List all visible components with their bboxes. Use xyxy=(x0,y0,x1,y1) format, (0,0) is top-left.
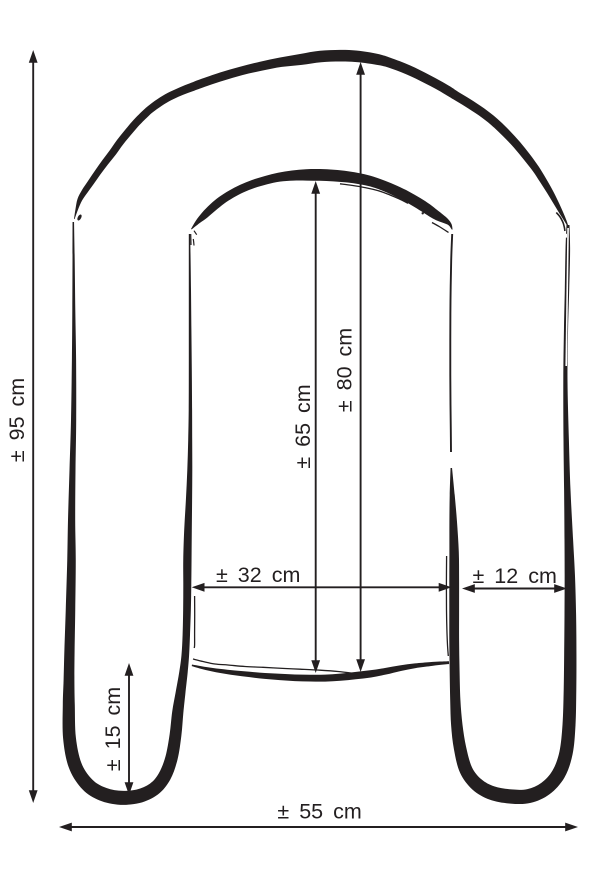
svg-text:± 80 cm: ± 80 cm xyxy=(333,328,357,412)
svg-text:± 15 cm: ± 15 cm xyxy=(101,687,125,771)
svg-text:± 95 cm: ± 95 cm xyxy=(5,378,29,462)
svg-text:± 32 cm: ± 32 cm xyxy=(216,563,300,587)
svg-text:± 65 cm: ± 65 cm xyxy=(291,384,315,468)
svg-text:± 55 cm: ± 55 cm xyxy=(277,799,361,823)
svg-text:± 12 cm: ± 12 cm xyxy=(473,564,557,588)
